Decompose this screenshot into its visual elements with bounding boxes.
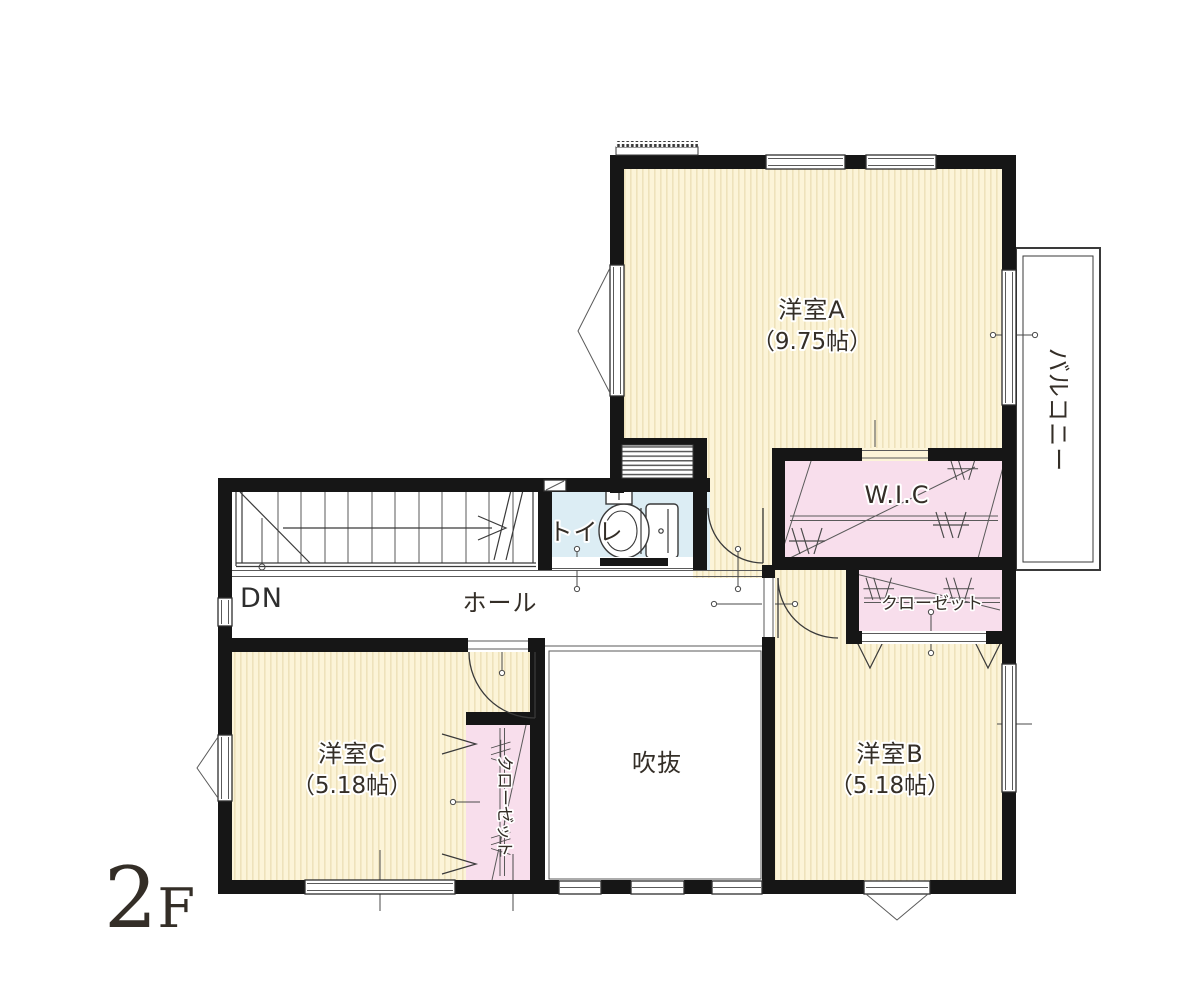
window-c-left bbox=[197, 735, 232, 801]
window-a-left bbox=[578, 265, 624, 396]
opening-wic-top bbox=[862, 448, 928, 461]
label-stairs-dn: DN bbox=[240, 583, 283, 614]
window-hall-left bbox=[218, 598, 232, 626]
stairs-top-shelf bbox=[544, 480, 566, 491]
window-c-bottom bbox=[305, 880, 455, 894]
opening-c-door bbox=[468, 638, 528, 652]
label-yoshitsu-a-size: （9.75帖） bbox=[752, 329, 872, 355]
hall-floor-lines bbox=[232, 571, 762, 577]
label-yoshitsu-c: 洋室C bbox=[318, 740, 386, 768]
floor-plan-page: 洋室A （9.75帖） W.I.C クローゼット トイレ ホール DN 洋室C … bbox=[0, 0, 1200, 1000]
label-yoshitsu-b-size: （5.18帖） bbox=[830, 773, 950, 799]
window-void-bottom bbox=[559, 881, 762, 894]
lattice-vent bbox=[616, 141, 698, 155]
opening-b-door bbox=[762, 578, 775, 637]
floor-plan-2f: 洋室A （9.75帖） W.I.C クローゼット トイレ ホール DN 洋室C … bbox=[0, 0, 1200, 1000]
label-wic: W.I.C bbox=[864, 481, 929, 509]
label-yoshitsu-c-size: （5.18帖） bbox=[292, 773, 412, 799]
stairs-hatch-box bbox=[622, 445, 693, 478]
staircase bbox=[236, 484, 536, 570]
window-b-bottom bbox=[864, 881, 930, 920]
toilet-sliding-door bbox=[552, 557, 693, 570]
label-toilet: トイレ bbox=[549, 518, 624, 546]
label-void: 吹抜 bbox=[632, 749, 682, 777]
opening-closet-right-bottom bbox=[862, 631, 986, 644]
window-a-top-1 bbox=[766, 155, 845, 169]
label-yoshitsu-b: 洋室B bbox=[856, 740, 923, 768]
label-hall: ホール bbox=[463, 589, 538, 617]
window-b-right bbox=[1002, 664, 1016, 792]
window-a-top-2 bbox=[866, 155, 936, 169]
floor-indicator-2f: 2F bbox=[104, 849, 195, 947]
window-a-right bbox=[1002, 270, 1016, 405]
label-yoshitsu-a: 洋室A bbox=[778, 296, 845, 324]
label-closet-left: クローゼット bbox=[494, 755, 514, 857]
label-closet-right: クローゼット bbox=[881, 594, 983, 614]
label-balcony: バルコニー bbox=[1044, 348, 1072, 473]
